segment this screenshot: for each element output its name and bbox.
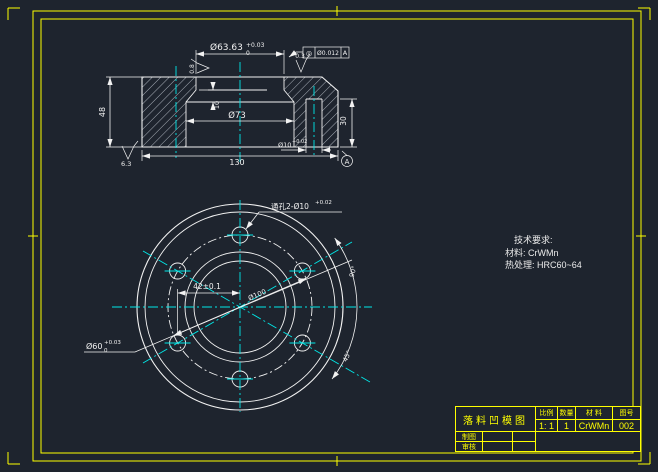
drafter-label: 制图 [456, 432, 483, 442]
gdt-datum: A [343, 49, 348, 57]
tech-req-material: 材料: CrWMn [505, 247, 582, 260]
title-block-empty-cell [536, 432, 640, 451]
gdt-tolerance: Ø0.012 [317, 50, 339, 57]
col-no-header: 图号 [613, 407, 640, 420]
cad-canvas: Ø63.63 +0.03 0 0.3 0.8 6.3 ◎ Ø0.012 A [0, 0, 658, 472]
checker-label: 审核 [456, 442, 483, 451]
roughness-symbol-bottom: 6.3 [121, 141, 138, 168]
dim-hole-label: Ø10 [278, 141, 291, 149]
dim-inner-label: Ø73 [228, 110, 246, 121]
plan-view: Ø60 +0.03 0 Ø100 42±0.1 通孔2-Ø10 +0.02 90… [84, 200, 372, 412]
dim-height-label: 48 [98, 107, 107, 117]
leader-holes-tol: +0.02 [315, 200, 332, 206]
dim-center-hole-tol-up: +0.03 [104, 340, 121, 346]
angle-upper-label: 90° [348, 265, 359, 278]
pitch-dimension: 42±0.1 [178, 282, 240, 334]
roughness-symbol-wall: 0.8 [189, 59, 209, 74]
gdt-symbol: ◎ [306, 50, 312, 58]
drawing-title: 落料凹模图 [456, 407, 536, 432]
dim-step-label: 30 [339, 116, 348, 126]
dim-bore-label: Ø63.63 [210, 42, 243, 53]
dim-center-hole-label: Ø60 [86, 341, 102, 351]
roughness-bottom-value: 6.3 [121, 160, 131, 168]
dim-bore-tol-dn: 0 [246, 50, 250, 57]
angle-dimension: 90° 45° [332, 238, 358, 379]
datum-balloon: A [342, 151, 353, 167]
angle-lower-label: 45° [341, 349, 353, 363]
leader-holes-label: 通孔2-Ø10 [271, 201, 309, 211]
col-scale-header: 比例 [536, 407, 558, 420]
drafter-name-cell [483, 432, 513, 442]
roughness-top-value: 0.3 [295, 53, 305, 60]
dim-land-label: 10 [213, 101, 221, 109]
title-block: 落料凹模图 比例 数量 材 料 图号 1: 1 1 CrWMn 002 制图 审… [455, 406, 641, 452]
dim-pitch-label: 42±0.1 [193, 282, 221, 291]
drawing-no-value: 002 [613, 420, 640, 432]
technical-requirements: 技术要求: 材料: CrWMn 热处理: HRC60~64 [505, 234, 582, 272]
scale-value: 1: 1 [536, 420, 558, 432]
tech-req-heading: 技术要求: [505, 234, 582, 247]
dim-center-hole-tol-dn: 0 [104, 348, 108, 354]
dim-bore-tol-up: +0.03 [246, 42, 265, 49]
section-view: Ø63.63 +0.03 0 0.3 0.8 6.3 ◎ Ø0.012 A [98, 42, 357, 168]
dim-width-label: 130 [229, 158, 244, 167]
col-material-header: 材 料 [576, 407, 613, 420]
col-qty-header: 数量 [558, 407, 576, 420]
checker-date-cell [513, 442, 536, 451]
roughness-wall-value: 0.8 [189, 64, 196, 74]
datum-label: A [345, 158, 350, 166]
qty-value: 1 [558, 420, 576, 432]
tech-req-heat-treatment: 热处理: HRC60~64 [505, 259, 582, 272]
drafter-date-cell [513, 432, 536, 442]
checker-name-cell [483, 442, 513, 451]
dim-hole-tol: +0.02 [292, 139, 307, 145]
material-value: CrWMn [576, 420, 613, 432]
